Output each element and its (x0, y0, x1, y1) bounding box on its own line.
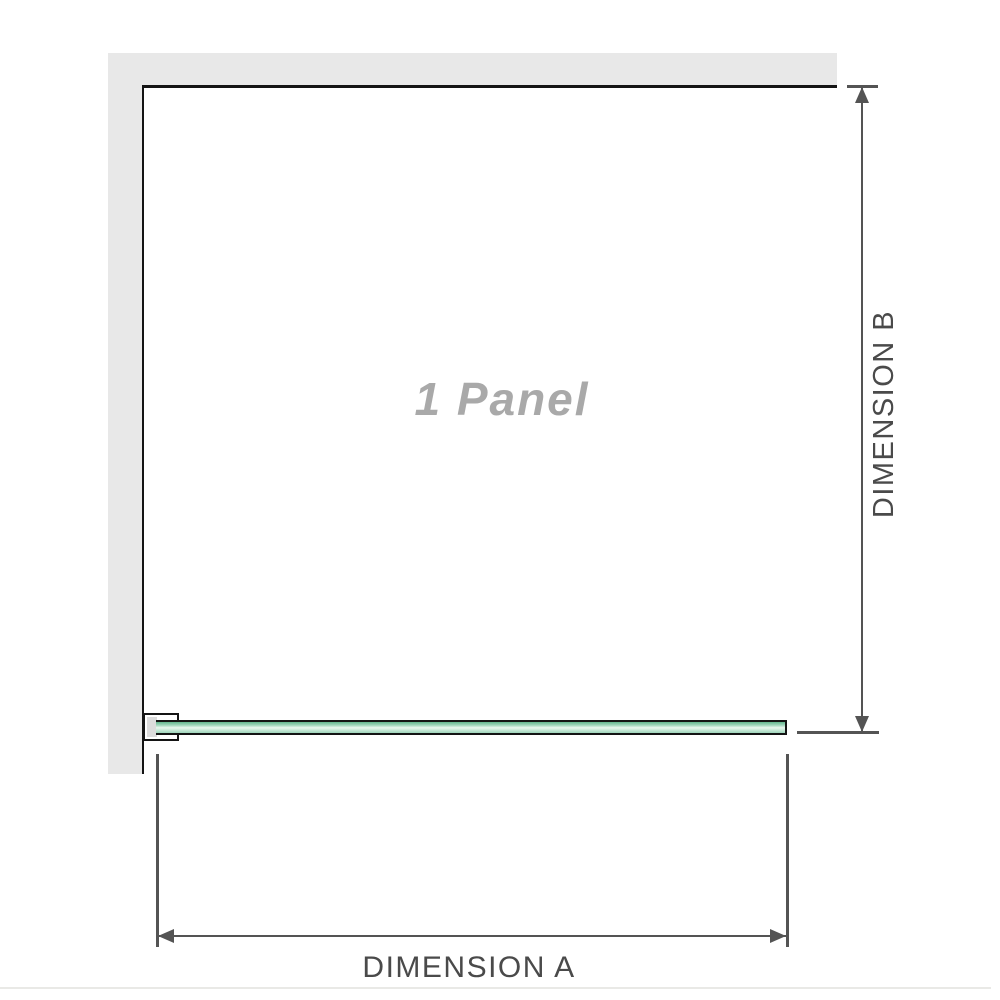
dimension-b-arrow-down-icon (855, 716, 869, 732)
bottom-separator-line (0, 987, 991, 989)
dimension-b-line (861, 88, 864, 733)
enclosure-outline-left (142, 85, 145, 774)
panel-count-label: 1 Panel (414, 372, 589, 426)
dimension-b-arrow-up-icon (855, 87, 869, 103)
shower-panel-dimension-diagram: DIMENSION B DIMENSION A 1 Panel (0, 0, 1000, 1000)
dimension-a-extension-right (786, 754, 789, 947)
glass-panel (156, 720, 788, 735)
wall-top (108, 53, 837, 86)
dimension-b-label: DIMENSION B (867, 254, 901, 574)
dimension-a-line (159, 935, 786, 938)
dimension-a-arrow-left-icon (158, 929, 174, 943)
dimension-a-label: DIMENSION A (362, 951, 575, 985)
dimension-a-arrow-right-icon (770, 929, 786, 943)
dimension-a-extension-left (156, 754, 159, 947)
enclosure-outline-top (142, 85, 838, 88)
wall-left (108, 53, 142, 774)
